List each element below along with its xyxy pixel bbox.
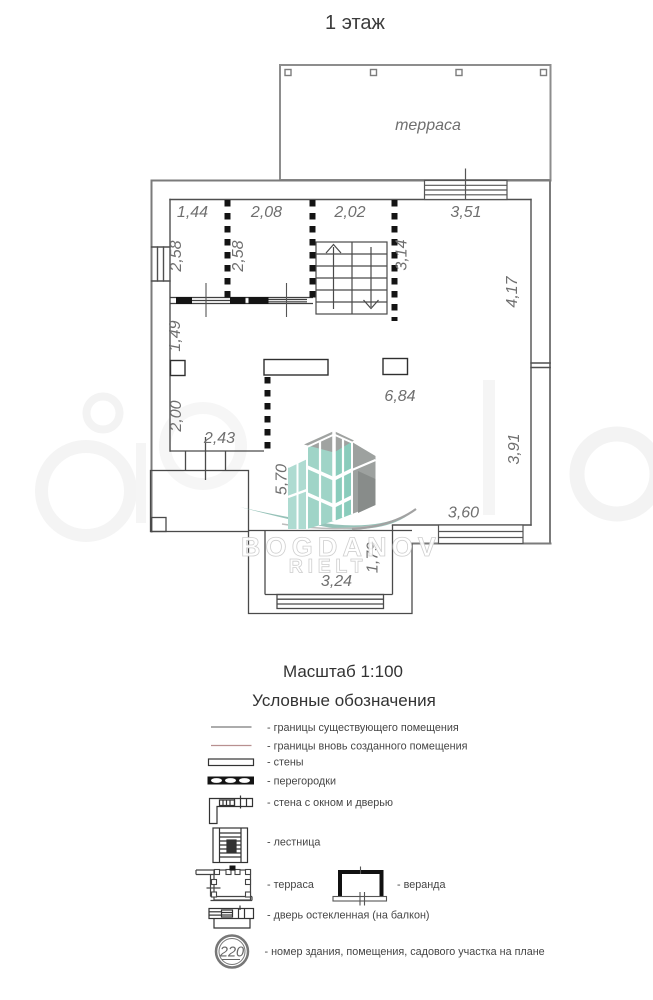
svg-text:2,00: 2,00	[168, 400, 185, 432]
svg-text:- номер здания, помещения, сад: - номер здания, помещения, садового учас…	[265, 946, 545, 958]
svg-text:Условные обозначения: Условные обозначения	[252, 691, 436, 710]
svg-text:220: 220	[219, 945, 244, 961]
svg-text:Масштаб 1:100: Масштаб 1:100	[283, 662, 403, 681]
svg-text:3,51: 3,51	[450, 204, 481, 221]
svg-text:4,17: 4,17	[504, 275, 521, 307]
svg-text:- границы вновь созданного пом: - границы вновь созданного помещения	[267, 741, 468, 753]
svg-text:3,60: 3,60	[448, 505, 479, 522]
svg-text:- лестница: - лестница	[267, 837, 320, 849]
svg-text:- стена с окном и дверью: - стена с окном и дверью	[267, 797, 393, 809]
svg-text:терраса: терраса	[395, 117, 461, 134]
svg-text:- границы существующего помеще: - границы существующего помещения	[267, 722, 459, 734]
svg-text:5,70: 5,70	[274, 464, 291, 495]
svg-text:- терраса: - терраса	[267, 879, 314, 891]
svg-text:6,84: 6,84	[384, 388, 415, 405]
svg-text:3,14: 3,14	[394, 239, 411, 270]
svg-text:- перегородки: - перегородки	[267, 776, 336, 788]
svg-text:2,58: 2,58	[230, 240, 247, 272]
svg-text:1,44: 1,44	[177, 204, 208, 221]
svg-text:1 этаж: 1 этаж	[325, 12, 386, 34]
svg-text:2,58: 2,58	[168, 240, 185, 272]
svg-text:1,49: 1,49	[167, 320, 184, 351]
svg-text:- стены: - стены	[267, 757, 304, 769]
svg-text:3,91: 3,91	[506, 433, 523, 464]
svg-text:2,43: 2,43	[203, 430, 235, 447]
svg-text:- веранда: - веранда	[397, 879, 446, 891]
svg-text:RIELT: RIELT	[289, 556, 367, 578]
svg-text:- дверь остекленная (на балкон: - дверь остекленная (на балкон)	[267, 910, 430, 922]
svg-text:2,02: 2,02	[333, 204, 365, 221]
svg-text:2,08: 2,08	[250, 204, 282, 221]
